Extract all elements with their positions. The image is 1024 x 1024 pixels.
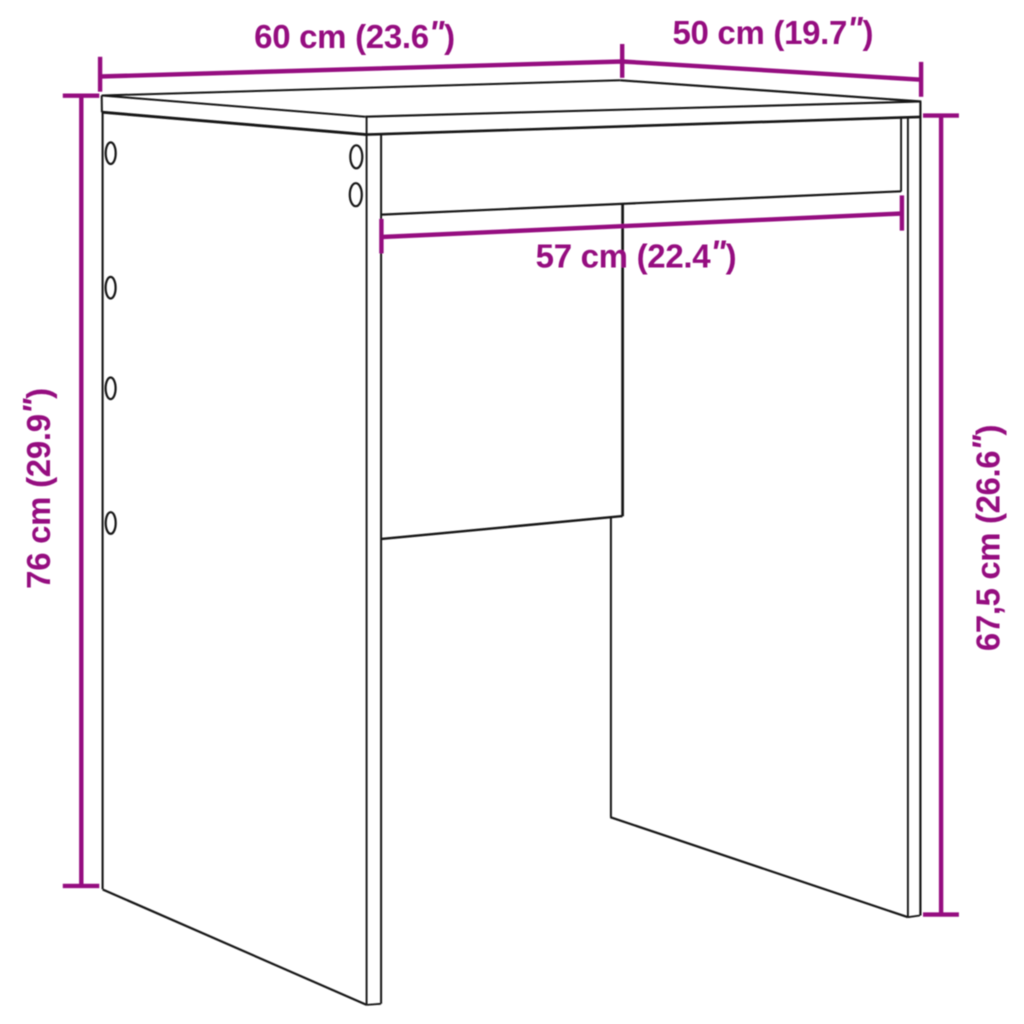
svg-text:50 cm (19.7"): 50 cm (19.7") (672, 10, 873, 51)
svg-text:67,5 cm (26.6"): 67,5 cm (26.6") (966, 425, 1007, 651)
svg-text:57 cm (22.4"): 57 cm (22.4") (536, 234, 737, 275)
svg-text:60 cm (23.6"): 60 cm (23.6") (254, 14, 455, 55)
svg-text:76 cm (29.9"): 76 cm (29.9") (16, 388, 57, 589)
